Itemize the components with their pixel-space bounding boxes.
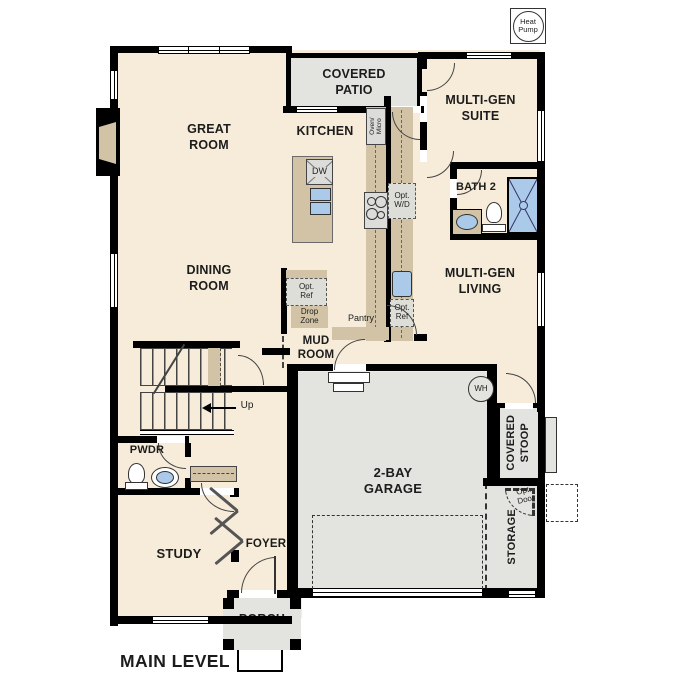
porch-post (290, 639, 301, 650)
dining-room-label: DINING ROOM (177, 263, 241, 294)
optional-washer-dryer: Opt. W/D (388, 183, 416, 219)
study-label: STUDY (143, 546, 215, 562)
storage-label: STORAGE (506, 509, 520, 565)
bath2-left-wall-stub (450, 169, 457, 179)
kitchenette-sink (392, 271, 412, 297)
porch-post (290, 598, 301, 609)
covered-patio: COVERED PATIO (286, 53, 422, 112)
pwdr-label: PWDR (124, 444, 170, 458)
ref-counter-backing (286, 270, 327, 278)
mud-room-label: MUD ROOM (288, 334, 344, 363)
garage-step-outer (328, 372, 370, 383)
drop-zone-label: Drop Zone (295, 308, 325, 326)
pwdr-sink-basin (156, 471, 174, 484)
garage-top-wall (287, 364, 492, 371)
living-south-wall-stub-b (414, 334, 427, 341)
dining-left-window (110, 253, 118, 308)
opt-ref-label: Opt. Ref (296, 283, 318, 301)
bath2-top-wall (450, 162, 542, 169)
floor-plan: COVERED PATIO 2-BAY GARAGE PORCH COVERED… (0, 0, 687, 687)
island-sink-basin (310, 188, 331, 201)
heat-pump-badge: Heat Pump (510, 8, 546, 44)
dishwasher: DW (306, 159, 333, 185)
stairs-lower-flight (140, 392, 232, 430)
great-room-triple-window (158, 46, 250, 54)
garage-step-inner (333, 383, 364, 392)
study-window (152, 616, 209, 624)
oven-micro-cabinet: Oven/ Micro (366, 108, 386, 145)
cooktop-burner (375, 196, 387, 208)
stairs-direction-arrow (202, 403, 211, 413)
pwdr-toilet-bowl (128, 463, 145, 484)
front-door-leaf (274, 556, 276, 594)
water-heater: WH (468, 376, 494, 402)
patio-slider-door (296, 106, 338, 113)
covered-patio-label: COVERED PATIO (319, 67, 389, 98)
heat-pump-circle: Heat Pump (513, 11, 544, 42)
great-room-left-window (110, 70, 118, 100)
great-room-label: GREAT ROOM (178, 122, 240, 153)
stairs-top-wall (133, 341, 240, 348)
stoop-step (545, 417, 557, 473)
foyer-label: FOYER (243, 537, 289, 551)
porch-post (223, 598, 234, 609)
garage-label: 2-BAY GARAGE (356, 465, 431, 498)
island-sink-basin (310, 202, 331, 215)
bath2-sink (456, 214, 478, 230)
stairs-landing-accent (208, 348, 221, 386)
study-door-stub-bottom (231, 550, 239, 562)
optional-stoop-extension (546, 484, 578, 522)
suite-right-window (537, 110, 545, 162)
oven-micro-label: Oven/ Micro (369, 118, 383, 136)
heat-pump-label: Heat Pump (516, 18, 540, 34)
suite-top-window (466, 52, 512, 59)
stairs-railing (140, 430, 234, 435)
cooktop-burner (377, 211, 385, 219)
living-right-window (537, 272, 545, 327)
porch-post (223, 639, 234, 650)
window-mullion (188, 46, 189, 54)
garage-door (312, 588, 483, 597)
coat-closet-rod-dashline (193, 473, 234, 475)
stairs-direction-line (210, 407, 236, 409)
pwdr-toilet-tank (125, 482, 148, 490)
garage-left-wall (287, 368, 298, 598)
storage-vent (508, 590, 536, 598)
dishwasher-label: DW (311, 167, 328, 177)
bath-hall-door-opening (420, 150, 427, 162)
multi-gen-suite-label: MULTI-GEN SUITE (428, 93, 533, 124)
pantry-label: Pantry (336, 314, 386, 324)
multi-gen-living-label: MULTI-GEN LIVING (424, 266, 536, 297)
stairs-up-label: Up (236, 400, 258, 411)
closet-bottom-wall (238, 386, 290, 392)
covered-stoop: COVERED STOOP (495, 403, 545, 483)
bath2-label: BATH 2 (454, 181, 498, 194)
plan-title: MAIN LEVEL (120, 651, 280, 673)
suite-west-wall-stub (420, 59, 427, 69)
kitchen-label: KITCHEN (291, 124, 359, 140)
bath2-toilet-bowl (486, 202, 502, 223)
stairs-closet-top-wall (262, 348, 290, 355)
window-mullion (219, 46, 220, 54)
optional-refrigerator-kitchen: Opt. Ref (286, 278, 327, 306)
shower-drain (519, 201, 528, 210)
pwdr-door-opening (157, 436, 185, 443)
drop-zone: Drop Zone (291, 306, 328, 328)
opt-wd-label: Opt. W/D (390, 192, 414, 210)
covered-stoop-label: COVERED STOOP (505, 415, 533, 471)
bath2-toilet-tank (482, 224, 506, 232)
bath2-shower (507, 177, 539, 234)
stoop-door-opening (505, 403, 533, 409)
garage-door-path-dashed (312, 515, 483, 589)
fireplace-firebox (99, 122, 116, 164)
